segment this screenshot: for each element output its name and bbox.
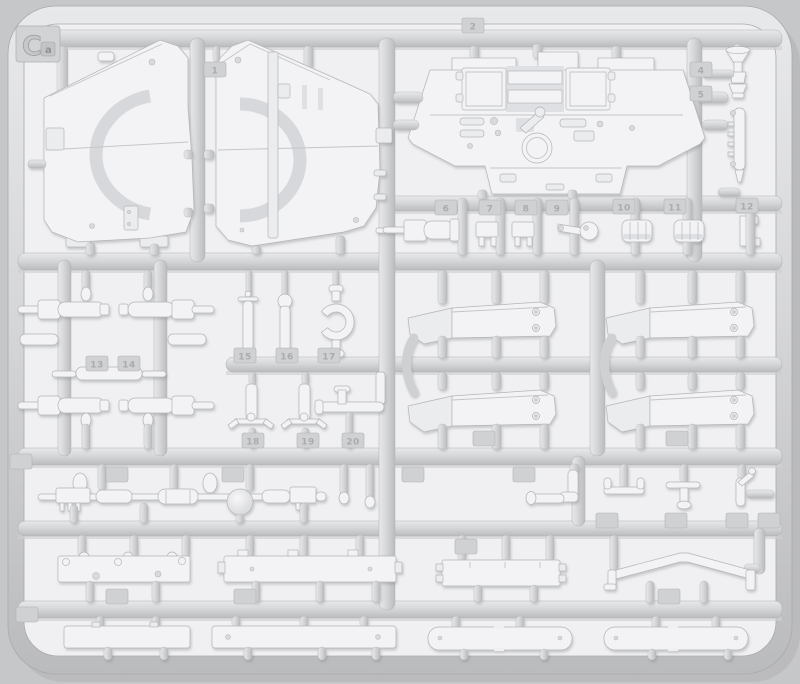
part-number-tag [106,467,128,482]
part-number-tag [10,454,32,469]
part-number-tag [234,589,256,604]
part-number-tag: 6 [435,200,457,215]
part-number-tag [402,467,424,482]
svg-text:6: 6 [443,205,450,215]
part-number-tag: 12 [736,198,758,213]
svg-text:8: 8 [523,205,530,215]
part-number-tag: 15 [234,348,256,363]
svg-text:9: 9 [554,205,561,215]
part-number-tag [455,539,477,554]
svg-text:16: 16 [280,353,294,363]
sprue-photo: C a 124567891011121314151617181920 [0,0,800,684]
part-number-tag: 2 [462,18,484,33]
svg-text:13: 13 [90,361,104,371]
svg-text:7: 7 [487,205,494,215]
sprue-canvas: C a 124567891011121314151617181920 [0,0,800,684]
part-number-tag [222,467,244,482]
svg-text:4: 4 [698,67,705,77]
small-tank-part [622,220,652,242]
part-number-tag: 19 [297,433,319,448]
part-number-tag: 17 [318,348,340,363]
svg-text:5: 5 [698,91,705,101]
part-number-tag [106,589,128,604]
svg-text:1: 1 [212,67,219,77]
part-number-tag: 14 [118,356,140,371]
svg-text:17: 17 [322,353,336,363]
part-number-tag: 5 [690,86,712,101]
part-number-tag: 7 [479,200,501,215]
part-number-tag: 9 [546,200,568,215]
part-number-tag [596,513,618,528]
part-number-tag [16,607,38,622]
svg-text:12: 12 [740,203,754,213]
part-number-tag [513,467,535,482]
svg-text:19: 19 [301,438,315,448]
svg-text:15: 15 [238,353,252,363]
svg-text:10: 10 [617,204,631,214]
part-number-tag: 1 [204,62,226,77]
sprue-letter: C [22,31,42,62]
part-number-tag: 13 [86,356,108,371]
part-number-tag: 8 [515,200,537,215]
part-number-tag: 4 [690,62,712,77]
part-number-tag: 10 [613,199,635,214]
part-number-tag [726,513,748,528]
part-number-tag [666,431,688,446]
svg-text:C: C [22,31,42,62]
svg-text:11: 11 [668,204,682,214]
part-number-tag: 11 [664,199,686,214]
part-number-tag [758,513,780,528]
part-number-tag: 18 [242,433,264,448]
sprue-code-label: C a [16,26,60,62]
part-number-tag [473,431,495,446]
svg-text:20: 20 [346,438,360,448]
part-number-tag: 16 [276,348,298,363]
svg-text:14: 14 [122,361,136,371]
svg-text:18: 18 [246,438,260,448]
small-tank-part [674,220,704,242]
tag-stub [213,46,220,62]
svg-text:2: 2 [470,23,477,33]
part-number-tag [665,513,687,528]
sprue-sub-letter: a [45,45,52,56]
part-number-tag: 20 [342,433,364,448]
part-number-tag [658,589,680,604]
